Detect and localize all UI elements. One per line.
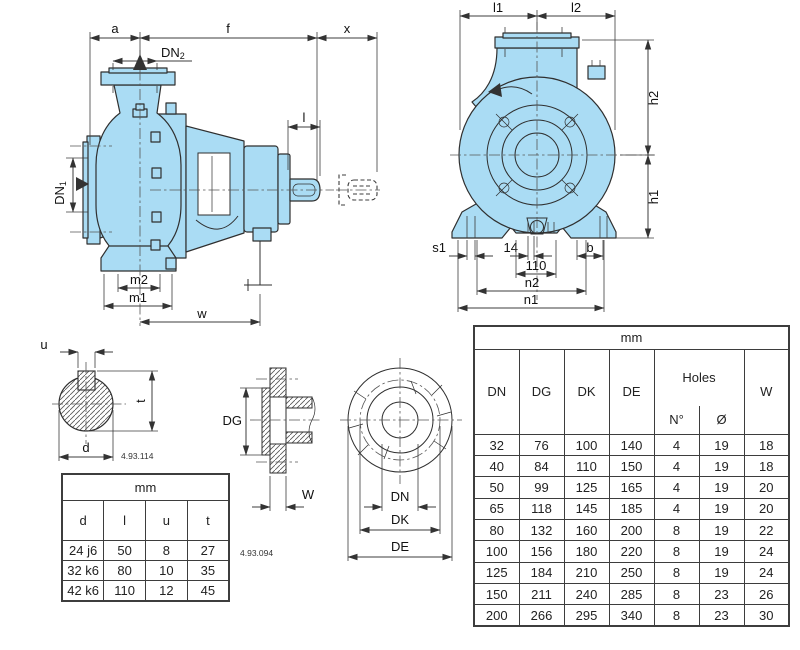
- cell: 24: [744, 541, 789, 562]
- cell: 22: [744, 520, 789, 541]
- hub-wall-top: [286, 397, 312, 408]
- col-header-d: d: [62, 500, 104, 540]
- bolt: [151, 132, 160, 142]
- bearing-housing: [244, 146, 278, 232]
- drawing-ref-114: 4.93.114: [121, 451, 154, 461]
- table-row: 150 211 240 285 8 23 26: [474, 583, 789, 604]
- cell: 40: [474, 456, 519, 477]
- table-row: 24 j6 50 8 27: [62, 541, 229, 561]
- cell: 4: [654, 456, 699, 477]
- shaft-dimensions-table: mm d l u t 24 j6 50 8 27 32 k6 80 10 35 …: [61, 473, 230, 602]
- dim-d-label: d: [82, 440, 89, 455]
- cell: 65: [474, 498, 519, 519]
- dim-x-label: x: [344, 21, 351, 36]
- cell: 211: [519, 583, 564, 604]
- cell: 35: [187, 561, 229, 581]
- table-row: 100 156 180 220 8 19 24: [474, 541, 789, 562]
- cell: 156: [519, 541, 564, 562]
- support-leg: [244, 241, 272, 291]
- col-header-w: W: [744, 349, 789, 434]
- cell: 165: [609, 477, 654, 498]
- cell: 285: [609, 583, 654, 604]
- cell: 110: [564, 456, 609, 477]
- cell: 50: [104, 541, 146, 561]
- cell: 80: [474, 520, 519, 541]
- cell: 50: [474, 477, 519, 498]
- cell: 100: [564, 434, 609, 455]
- dim-s1-label: s1: [432, 240, 446, 255]
- table-row: DN DG DK DE Holes W: [474, 349, 789, 406]
- dim-f-label: f: [226, 21, 230, 36]
- cell: 19: [699, 562, 744, 583]
- table-row: 40 84 110 150 4 19 18: [474, 456, 789, 477]
- support-bolt-block: [253, 228, 271, 241]
- cell: 125: [474, 562, 519, 583]
- cell: 24 j6: [62, 541, 104, 561]
- cell: 295: [564, 605, 609, 626]
- col-header-l: l: [104, 500, 146, 540]
- cell: 76: [519, 434, 564, 455]
- bolt: [151, 240, 160, 250]
- cell: 45: [187, 581, 229, 601]
- flange-bore: [270, 397, 286, 444]
- table-row: mm: [62, 474, 229, 500]
- cell: 24: [744, 562, 789, 583]
- dim-l2-label: l2: [571, 0, 581, 15]
- key-block: [78, 371, 95, 390]
- cell: 145: [564, 498, 609, 519]
- shaft-end-section: u t d 4.93.114: [40, 337, 158, 461]
- cell: 12: [146, 581, 188, 601]
- cell: 125: [564, 477, 609, 498]
- col-header-holes: Holes: [654, 349, 744, 406]
- cell: 80: [104, 561, 146, 581]
- table-row: mm: [474, 326, 789, 349]
- dim-dn2-label: DN2: [161, 45, 185, 61]
- cell: 200: [609, 520, 654, 541]
- table-row: 32 76 100 140 4 19 18: [474, 434, 789, 455]
- cell: 160: [564, 520, 609, 541]
- cell: 8: [654, 605, 699, 626]
- cell: 180: [564, 541, 609, 562]
- flange-plate-top: [270, 368, 286, 397]
- cell: 18: [744, 434, 789, 455]
- bracket-window: [198, 153, 230, 215]
- dim-t-label: t: [133, 399, 148, 403]
- cell: 99: [519, 477, 564, 498]
- table-row: 125 184 210 250 8 19 24: [474, 562, 789, 583]
- bolt: [166, 258, 176, 269]
- cell: 132: [519, 520, 564, 541]
- cell: 19: [699, 456, 744, 477]
- dim-n2-label: n2: [525, 275, 539, 290]
- cell: 110: [104, 581, 146, 601]
- cell: 8: [654, 541, 699, 562]
- bolt: [166, 103, 176, 114]
- cell: 26: [744, 583, 789, 604]
- table-row: 200 266 295 340 8 23 30: [474, 605, 789, 626]
- cell: 4: [654, 498, 699, 519]
- table-row: 65 118 145 185 4 19 20: [474, 498, 789, 519]
- drawing-ref-094: 4.93.094: [240, 548, 273, 558]
- dim-dk-label: DK: [391, 512, 409, 527]
- flange-dimensions-table: mm DN DG DK DE Holes W N° Ø 32 76 100 14…: [473, 325, 790, 627]
- dim-m1-label: m1: [129, 290, 147, 305]
- table-row: d l u t: [62, 500, 229, 540]
- dim-de-label: DE: [391, 539, 409, 554]
- cell: 140: [609, 434, 654, 455]
- cell: 8: [146, 541, 188, 561]
- dim-110-label: 110: [526, 258, 547, 273]
- unit-header: mm: [474, 326, 789, 349]
- table-row: 32 k6 80 10 35: [62, 561, 229, 581]
- table-row: 80 132 160 200 8 19 22: [474, 520, 789, 541]
- pump-foot: [101, 246, 176, 271]
- dim-dn1-label: DN1: [52, 181, 68, 205]
- dim-w-label: w: [196, 306, 207, 321]
- dim-n1-label: n1: [524, 292, 538, 307]
- cell: 19: [699, 477, 744, 498]
- cell: 27: [187, 541, 229, 561]
- unit-header: mm: [62, 474, 229, 500]
- hub-wall-bottom: [286, 432, 312, 443]
- col-header-holes-dia: Ø: [699, 406, 744, 434]
- col-header-holes-n: N°: [654, 406, 699, 434]
- cell: 266: [519, 605, 564, 626]
- cell: 250: [609, 562, 654, 583]
- cell: 8: [654, 520, 699, 541]
- dim-a-label: a: [111, 21, 119, 36]
- cell: 8: [654, 583, 699, 604]
- cell: 150: [609, 456, 654, 477]
- cell: 42 k6: [62, 581, 104, 601]
- cell: 18: [744, 456, 789, 477]
- bolt: [152, 168, 161, 178]
- cell: 30: [744, 605, 789, 626]
- cell: 19: [699, 434, 744, 455]
- cell: 4: [654, 477, 699, 498]
- cell: 220: [609, 541, 654, 562]
- flange-raised-face: [262, 388, 270, 455]
- cell: 19: [699, 498, 744, 519]
- cell: 32: [474, 434, 519, 455]
- cell: 240: [564, 583, 609, 604]
- cell: 10: [146, 561, 188, 581]
- casing-lug: [588, 66, 605, 79]
- cell: 8: [654, 562, 699, 583]
- cell: 19: [699, 541, 744, 562]
- cell: 100: [474, 541, 519, 562]
- dim-l-label: l: [303, 110, 306, 125]
- cell: 150: [474, 583, 519, 604]
- dim-m2-label: m2: [130, 272, 148, 287]
- dim-l1-label: l1: [493, 0, 503, 15]
- flange-section-view: DG W 4.93.094: [223, 368, 323, 558]
- col-header-u: u: [146, 500, 188, 540]
- cell: 340: [609, 605, 654, 626]
- cell: 184: [519, 562, 564, 583]
- flange-front-view: DN DK DE: [340, 358, 462, 561]
- suction-flange-face: [83, 142, 88, 238]
- dim-h2-label: h2: [646, 91, 661, 105]
- cell: 185: [609, 498, 654, 519]
- cell: 32 k6: [62, 561, 104, 581]
- cell: 84: [519, 456, 564, 477]
- col-header-dk: DK: [564, 349, 609, 434]
- pump-front-view: l1 l2 h2 h1 s1 14 b 110 n2 n1: [432, 0, 661, 312]
- pump-dimension-datasheet: a f x DN2 DN1 l m2 m1 w: [0, 0, 800, 650]
- cell: 20: [744, 477, 789, 498]
- cell: 23: [699, 583, 744, 604]
- cell: 210: [564, 562, 609, 583]
- col-header-dn: DN: [474, 349, 519, 434]
- discharge-flange: [101, 72, 175, 85]
- flow-arrow-up: [133, 54, 147, 70]
- col-header-t: t: [187, 500, 229, 540]
- table-row: 50 99 125 165 4 19 20: [474, 477, 789, 498]
- cell: 19: [699, 520, 744, 541]
- dim-h1-label: h1: [646, 190, 661, 204]
- flange-plate-bottom: [270, 444, 286, 473]
- cell: 4: [654, 434, 699, 455]
- bolt: [152, 212, 161, 222]
- cell: 20: [744, 498, 789, 519]
- cell: 118: [519, 498, 564, 519]
- dim-u-label: u: [40, 337, 47, 352]
- table-row: 42 k6 110 12 45: [62, 581, 229, 601]
- dim-dn-label: DN: [391, 489, 410, 504]
- col-header-de: DE: [609, 349, 654, 434]
- cell: 200: [474, 605, 519, 626]
- dim-dg-label: DG: [223, 413, 243, 428]
- dim-w-flange-label: W: [302, 487, 315, 502]
- cell: 23: [699, 605, 744, 626]
- dim-b-label: b: [586, 240, 593, 255]
- pump-side-view: a f x DN2 DN1 l m2 m1 w: [52, 21, 380, 326]
- col-header-dg: DG: [519, 349, 564, 434]
